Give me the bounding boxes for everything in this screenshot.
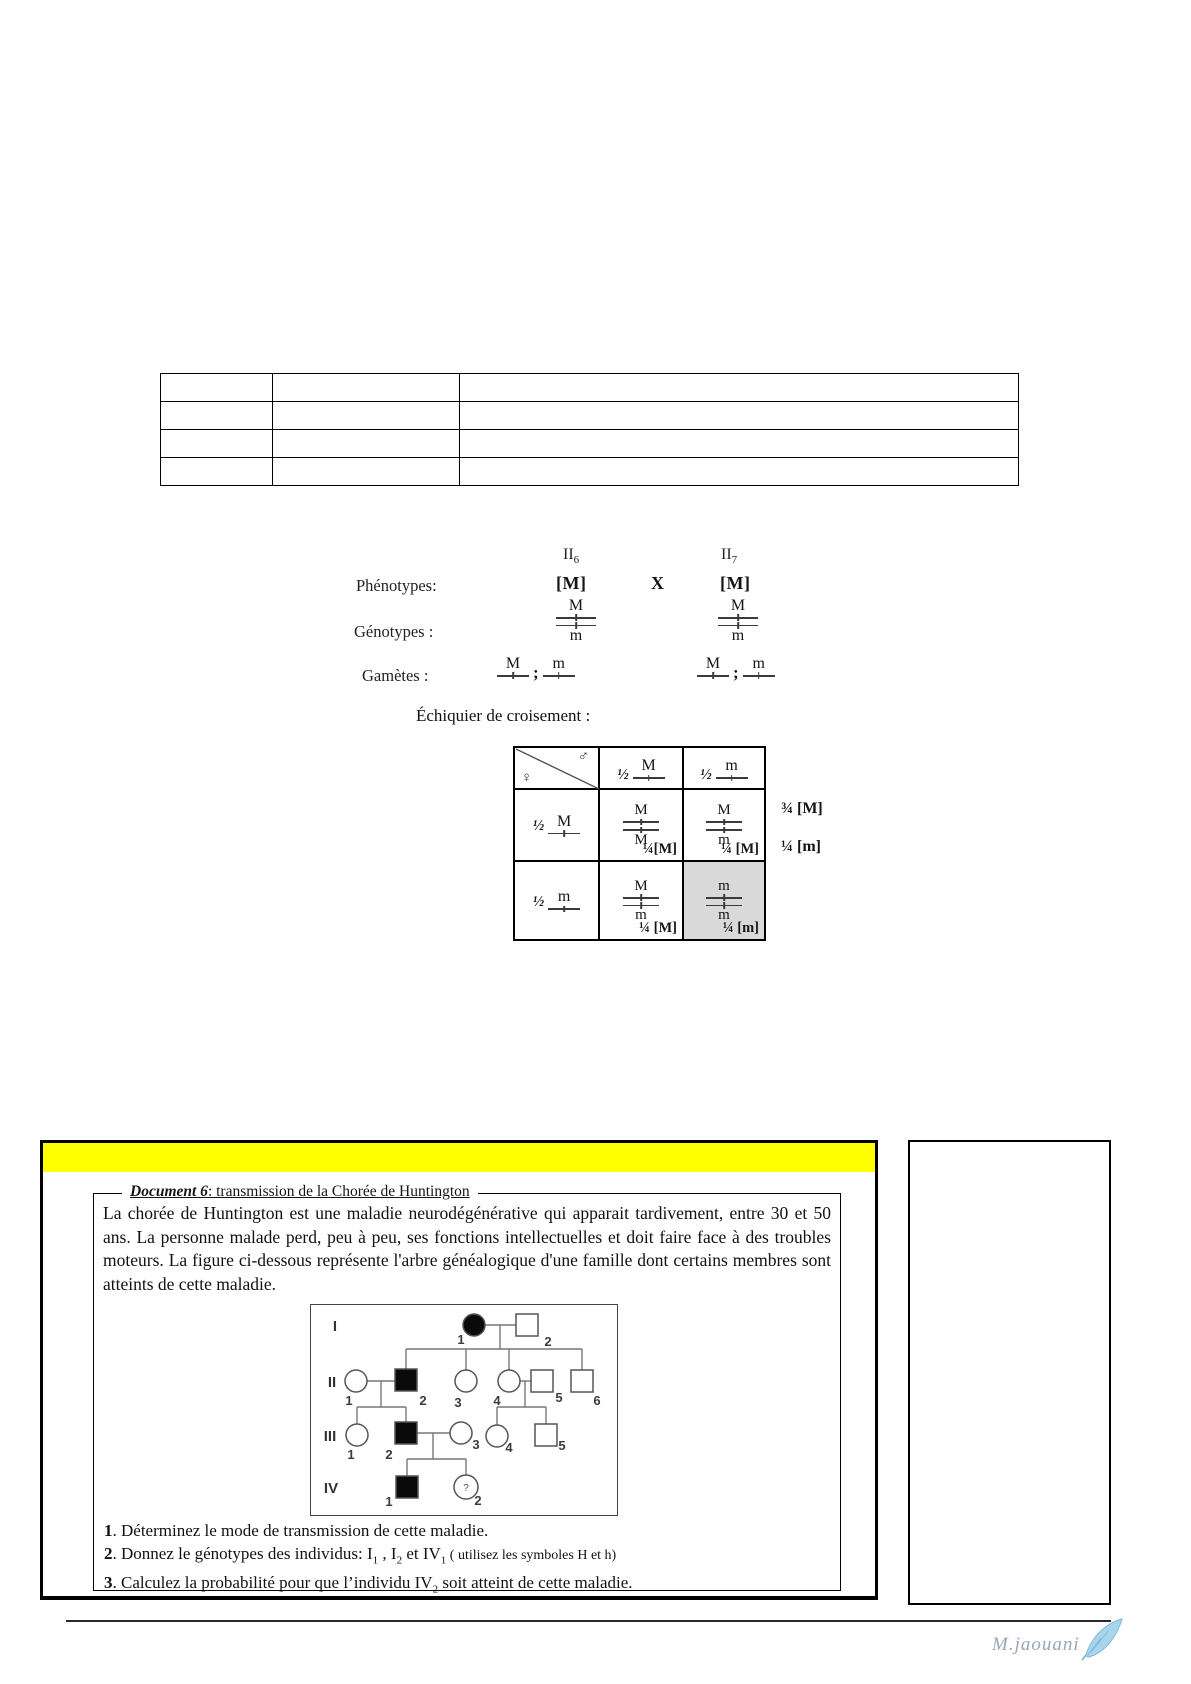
chromosome-line [623,829,659,831]
chromosome-line [623,821,659,823]
gametes-left: M ; m [497,656,575,679]
gamete: m [716,758,748,781]
punnett-cell-mM: M m ¼ [M] [600,862,684,939]
svg-text:2: 2 [419,1393,426,1408]
svg-text:5: 5 [558,1438,565,1453]
pedigree-svg: I II III IV 1 2 1 2 3 4 5 6 1 [311,1305,616,1514]
signature-text: M.jaouani [992,1634,1080,1656]
punnett-col-header-m: ½ m [684,748,764,790]
chromosome-line [743,675,775,677]
chromosome-line [543,675,575,677]
member-III-2-affected-male [395,1422,417,1444]
punnett-cell-MM: M M ¼[M] [600,790,684,862]
genotype-stack-left: M m [556,598,596,645]
table-row [161,430,1019,458]
unknown-status-mark: ? [463,1483,469,1494]
phenotype-total-M: ¾ [M] [781,800,823,818]
chromosome-line [548,908,580,910]
gametes-label: Gamètes : [362,666,428,686]
pedigree-figure: I II III IV 1 2 1 2 3 4 5 6 1 [310,1304,618,1516]
gamete: m [548,889,580,912]
cell-result: ¼ [M] [639,920,677,937]
svg-text:6: 6 [593,1393,600,1408]
svg-text:I: I [333,1318,337,1335]
question-3: 3. Calculez la probabilité pour que l’in… [104,1572,836,1600]
punnett-cell-mm-shaded: m m ¼ [m] [684,862,764,939]
questions-list: 1. Déterminez le mode de transmission de… [104,1520,836,1602]
member-II-1-female [345,1370,367,1392]
punnett-corner-cell: ♀ ♂ [515,748,600,790]
page-bottom-rule [66,1620,1111,1622]
table-cell [273,430,460,458]
member-I-1-affected-female [463,1314,485,1336]
svg-text:5: 5 [555,1390,562,1405]
chromosome-line [718,625,758,627]
genotype-stack: m m [706,879,742,924]
member-III-1-female [346,1424,368,1446]
feather-icon [1080,1616,1126,1662]
table-cell [161,430,273,458]
svg-text:II: II [328,1374,336,1391]
table-cell [460,402,1019,430]
svg-text:3: 3 [472,1437,479,1452]
svg-text:1: 1 [385,1494,392,1509]
document6-legend: Document 6: transmission de la Chorée de… [122,1183,478,1201]
chromosome-line [706,905,742,907]
phenotype-left: [M] [556,573,586,594]
table-cell [161,374,273,402]
svg-text:2: 2 [544,1334,551,1349]
chromosome-line [623,905,659,907]
member-III-5-male [535,1424,557,1446]
genotype-stack-right: M m [718,598,758,645]
document6-paragraph: La chorée de Huntington est une maladie … [103,1202,831,1296]
member-II-4-female [498,1370,520,1392]
chromosome-line [623,897,659,899]
cell-result: ¼ [M] [721,841,759,858]
exam-document-page: II6 II7 Phénotypes: [M] X [M] Génotypes … [0,0,1191,1684]
gamete: M [697,656,729,679]
svg-text:4: 4 [493,1393,501,1408]
svg-text:2: 2 [385,1447,392,1462]
phenotype-total-m: ¼ [m] [781,838,821,856]
svg-text:IV: IV [324,1480,338,1497]
chromosome-line [556,625,596,627]
chromosome-line [718,617,758,619]
male-icon: ♂ [578,749,589,766]
table-cell [161,402,273,430]
gamete: M [548,814,580,837]
chromosome-line [706,897,742,899]
table-row [161,374,1019,402]
question-1: 1. Déterminez le mode de transmission de… [104,1520,836,1542]
phenotype-right: [M] [720,573,750,594]
document6-frame: Document 6: transmission de la Chorée de… [93,1193,841,1591]
gamete: m [543,656,575,679]
gamete: m [743,656,775,679]
table-row [161,402,1019,430]
punnett-square: ♀ ♂ ½ M ½ m ½ M M M ¼[M] M [513,746,766,941]
punnett-cell-Mm: M m ¼ [M] [684,790,764,862]
chromosome-line [706,829,742,831]
table-row [161,458,1019,486]
member-II-3-female [455,1370,477,1392]
table-cell [273,458,460,486]
answer-table [160,373,1019,486]
chromosome-line [633,777,665,779]
question-2: 2. Donnez le génotypes des individus: I1… [104,1543,836,1571]
cross-symbol: X [651,573,665,594]
pedigree-generation-labels: I II III IV [324,1318,338,1497]
svg-text:3: 3 [454,1395,461,1410]
document6-box: Document 6: transmission de la Chorée de… [40,1140,878,1600]
svg-text:1: 1 [457,1332,464,1347]
gametes-right: M ; m [697,656,775,679]
right-margin-box [908,1140,1111,1605]
punnett-col-header-M: ½ M [600,748,684,790]
chromosome-line [716,777,748,779]
table-cell [460,374,1019,402]
svg-text:III: III [324,1428,337,1445]
gamete: M [633,758,665,781]
member-I-2-male [516,1314,538,1336]
gamete: M [497,656,529,679]
chromosome-line [556,617,596,619]
member-II-6-male [571,1370,593,1392]
table-cell [273,374,460,402]
cell-result: ¼ [m] [723,920,759,937]
svg-text:4: 4 [505,1440,513,1455]
member-IV-1-affected-male [396,1476,418,1498]
phenotypes-label: Phénotypes: [356,576,437,596]
female-icon: ♀ [521,770,532,787]
chromosome-line [697,675,729,677]
chromosome-line [548,833,580,835]
svg-text:2: 2 [474,1493,481,1508]
member-II-5-male [531,1370,553,1392]
genotype-stack: M m [623,879,659,924]
table-cell [161,458,273,486]
member-III-3-female [450,1422,472,1444]
svg-text:1: 1 [345,1393,352,1408]
table-cell [460,458,1019,486]
highlight-bar [43,1143,875,1172]
chromosome-line [706,821,742,823]
genotypes-label: Génotypes : [354,622,433,642]
parent-id-II6: II6 [563,546,579,566]
svg-text:1: 1 [347,1447,354,1462]
member-II-2-affected-male [395,1369,417,1391]
table-cell [273,402,460,430]
parent-id-II7: II7 [721,546,737,566]
table-cell [460,430,1019,458]
punnett-row-header-m: ½ m [515,862,600,939]
punnett-title: Échiquier de croisement : [416,706,590,726]
punnett-row-header-M: ½ M [515,790,600,862]
cell-result: ¼[M] [643,841,677,858]
chromosome-line [497,675,529,677]
